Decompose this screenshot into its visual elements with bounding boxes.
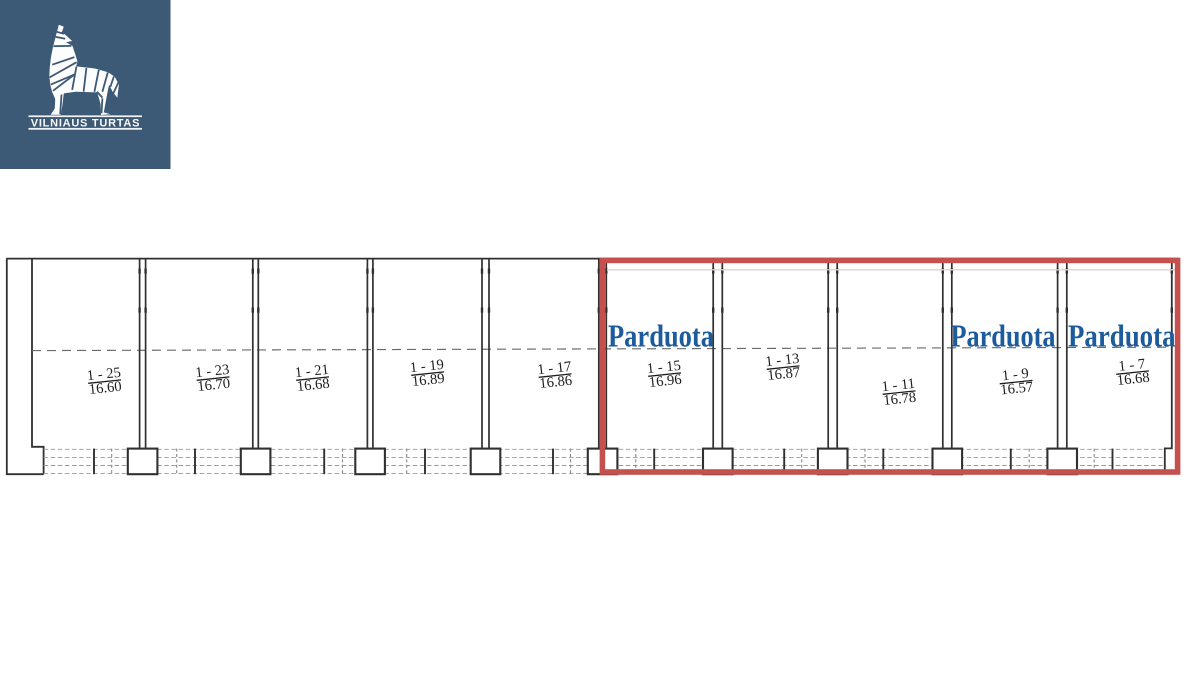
svg-text:16.86: 16.86	[539, 373, 573, 392]
svg-text:16.60: 16.60	[88, 379, 122, 398]
svg-text:16.57: 16.57	[1000, 379, 1034, 398]
svg-text:16.87: 16.87	[767, 365, 801, 384]
svg-text:16.68: 16.68	[1116, 370, 1150, 389]
svg-text:VILNIAUS TURTAS: VILNIAUS TURTAS	[31, 118, 140, 130]
svg-text:16.78: 16.78	[883, 390, 917, 409]
svg-text:16.96: 16.96	[648, 372, 682, 391]
svg-text:Parduota: Parduota	[951, 319, 1056, 354]
svg-text:Parduota: Parduota	[1068, 319, 1176, 354]
svg-text:16.70: 16.70	[197, 376, 231, 395]
svg-text:Parduota: Parduota	[608, 319, 714, 354]
svg-text:16.68: 16.68	[296, 376, 330, 395]
svg-text:16.89: 16.89	[411, 371, 445, 390]
